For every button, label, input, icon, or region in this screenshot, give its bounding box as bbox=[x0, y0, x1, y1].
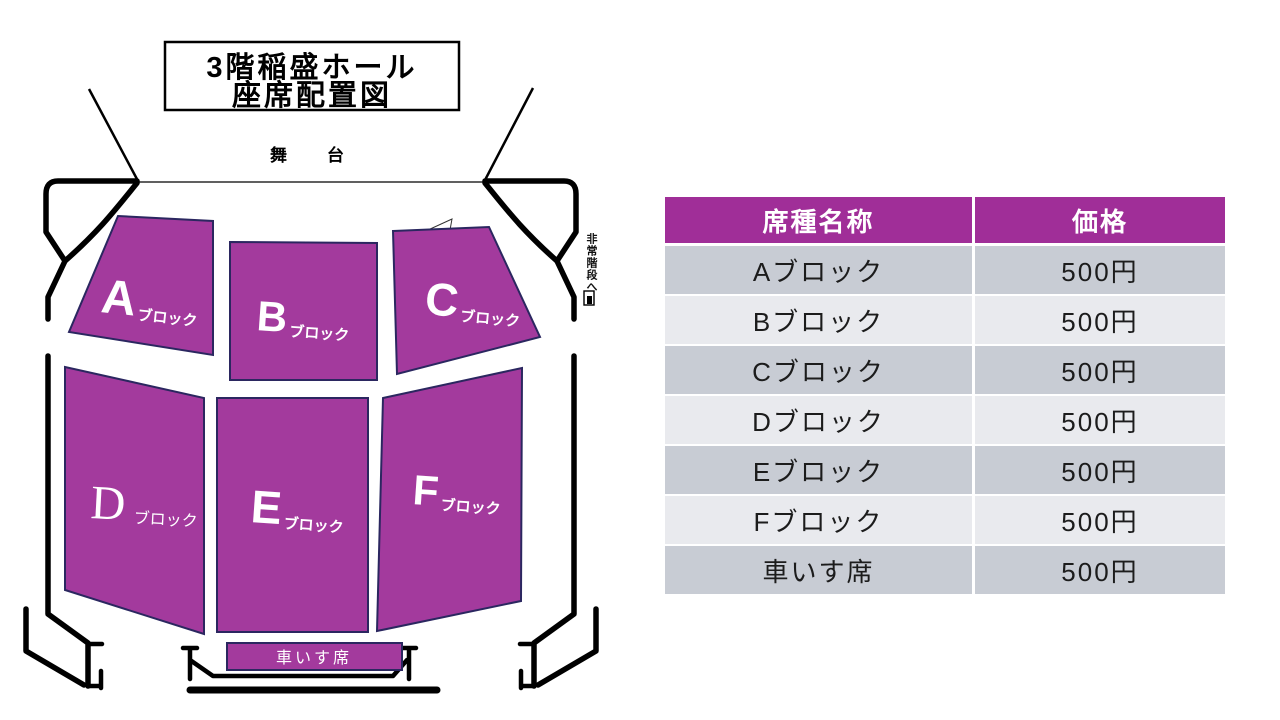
stage-label: 舞台 bbox=[270, 145, 384, 165]
block-d bbox=[65, 367, 204, 634]
wheelchair-label: 車いす席 bbox=[276, 649, 352, 667]
price-cell: 500円 bbox=[975, 396, 1225, 444]
header-seat-type: 席種名称 bbox=[665, 197, 972, 243]
seating-chart-page: 3階稲盛ホール 座席配置図 舞台 bbox=[0, 0, 1280, 720]
seat-type-cell: Eブロック bbox=[665, 446, 972, 494]
table-row-c: Cブロック 500円 bbox=[665, 346, 1225, 394]
exit-icon bbox=[584, 291, 594, 305]
emergency-exit-label: 非常階段へ bbox=[583, 233, 599, 293]
seat-type-cell: Bブロック bbox=[665, 296, 972, 344]
seat-type-cell: Aブロック bbox=[665, 246, 972, 294]
block-a-letter: A bbox=[99, 270, 139, 326]
price-cell: 500円 bbox=[975, 546, 1225, 594]
price-cell: 500円 bbox=[975, 296, 1225, 344]
price-cell: 500円 bbox=[975, 496, 1225, 544]
price-cell: 500円 bbox=[975, 446, 1225, 494]
table-row-wheelchair: 車いす席 500円 bbox=[665, 546, 1225, 594]
block-f-letter: F bbox=[411, 466, 440, 515]
seat-type-cell: Cブロック bbox=[665, 346, 972, 394]
table-row-f: Fブロック 500円 bbox=[665, 496, 1225, 544]
seat-map-figure: 3階稲盛ホール 座席配置図 舞台 bbox=[0, 0, 640, 720]
table-row-b: Bブロック 500円 bbox=[665, 296, 1225, 344]
block-d-letter: D bbox=[89, 476, 126, 531]
seat-type-cell: 車いす席 bbox=[665, 546, 972, 594]
price-table-header: 席種名称 価格 bbox=[665, 197, 1225, 243]
table-row-a: Aブロック 500円 bbox=[665, 246, 1225, 294]
block-c bbox=[393, 227, 540, 374]
price-cell: 500円 bbox=[975, 346, 1225, 394]
block-b-letter: B bbox=[255, 292, 289, 341]
block-e-letter: E bbox=[249, 480, 283, 534]
header-price: 価格 bbox=[975, 197, 1225, 243]
seat-type-cell: Fブロック bbox=[665, 496, 972, 544]
map-title-line2: 座席配置図 bbox=[232, 78, 392, 112]
block-b bbox=[230, 242, 377, 380]
block-c-letter: C bbox=[423, 272, 461, 327]
price-cell: 500円 bbox=[975, 246, 1225, 294]
table-row-e: Eブロック 500円 bbox=[665, 446, 1225, 494]
price-table: 席種名称 価格 Aブロック 500円 Bブロック 500円 Cブロック 500円… bbox=[665, 197, 1225, 596]
seat-type-cell: Dブロック bbox=[665, 396, 972, 444]
table-row-d: Dブロック 500円 bbox=[665, 396, 1225, 444]
